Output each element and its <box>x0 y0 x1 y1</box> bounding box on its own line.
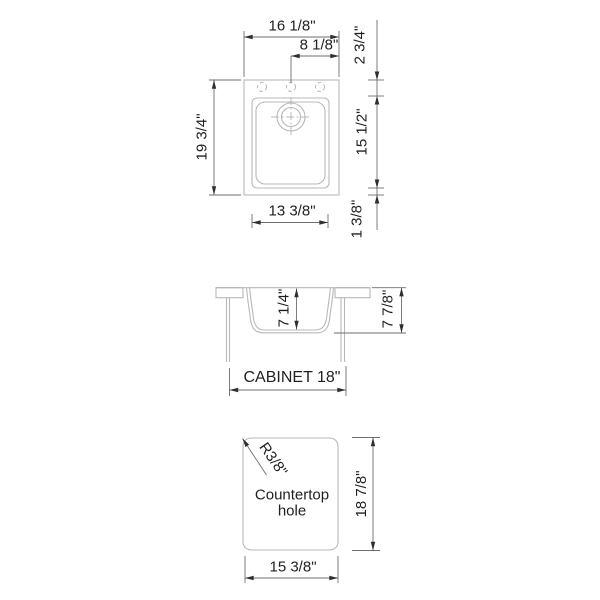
radius-label: R3/8" <box>255 439 290 479</box>
dim-label-bowl-width: 13 3/8" <box>268 203 315 220</box>
dim-label-overall-width: 16 1/8" <box>268 18 315 35</box>
bowl-outer-outline <box>252 98 329 188</box>
countertop-hole-label-line1: Countertop <box>255 487 329 504</box>
countertop-hole-label-line2: hole <box>278 503 306 520</box>
plan-view: 16 1/8" 8 1/8" 19 3/4" 2 3/4" <box>194 18 385 239</box>
dim-label-overall-length: 19 3/4" <box>194 113 211 160</box>
faucet-hole-center <box>287 83 296 92</box>
arrowhead <box>375 195 380 204</box>
arrowhead <box>375 180 380 189</box>
countertop-right-block <box>335 288 370 298</box>
faucet-hole-left <box>258 83 267 92</box>
arrowhead <box>375 72 380 81</box>
dim-label-center-to-edge: 8 1/8" <box>300 37 339 54</box>
dim-label-cabinet: CABINET 18" <box>244 369 341 386</box>
drawing-page: 16 1/8" 8 1/8" 19 3/4" 2 3/4" <box>0 0 600 600</box>
cutout-view: R3/8" Countertop hole 18 7/8" 15 3/8" <box>243 438 381 584</box>
countertop-left-block <box>216 288 243 298</box>
sink-technical-drawing: 16 1/8" 8 1/8" 19 3/4" 2 3/4" <box>0 0 600 600</box>
dim-bowl-depth: 7 1/4" <box>276 289 297 330</box>
dim-bowl-width: 13 3/8" <box>252 203 328 229</box>
dim-cabinet: CABINET 18" <box>230 366 347 396</box>
dim-label-cutout-width: 15 3/8" <box>269 559 316 576</box>
dim-label-bowl-depth: 7 1/4" <box>276 289 293 328</box>
dim-label-overall-depth: 7 7/8" <box>380 290 397 329</box>
dim-overall-length: 19 3/4" <box>194 80 242 195</box>
dim-center-to-edge: 8 1/8" <box>291 37 339 84</box>
dim-cutout-width: 15 3/8" <box>245 556 338 583</box>
dim-label-bowl-length: 15 1/2" <box>354 108 371 155</box>
dim-cutout-length: 18 7/8" <box>352 438 380 551</box>
faucet-hole-right <box>316 83 325 92</box>
dim-right-stack: 2 3/4" 15 1/2" 1 3/8" <box>349 20 385 238</box>
dim-label-rim-to-bowl-top: 2 3/4" <box>352 26 369 65</box>
dim-label-cutout-length: 18 7/8" <box>353 470 370 517</box>
section-view: 7 1/4" 7 7/8" CABINET 18" <box>216 288 406 396</box>
dim-label-bowl-to-rim-bottom: 1 3/8" <box>349 200 366 239</box>
arrowhead <box>375 96 380 105</box>
radius-callout: R3/8" <box>243 439 291 480</box>
